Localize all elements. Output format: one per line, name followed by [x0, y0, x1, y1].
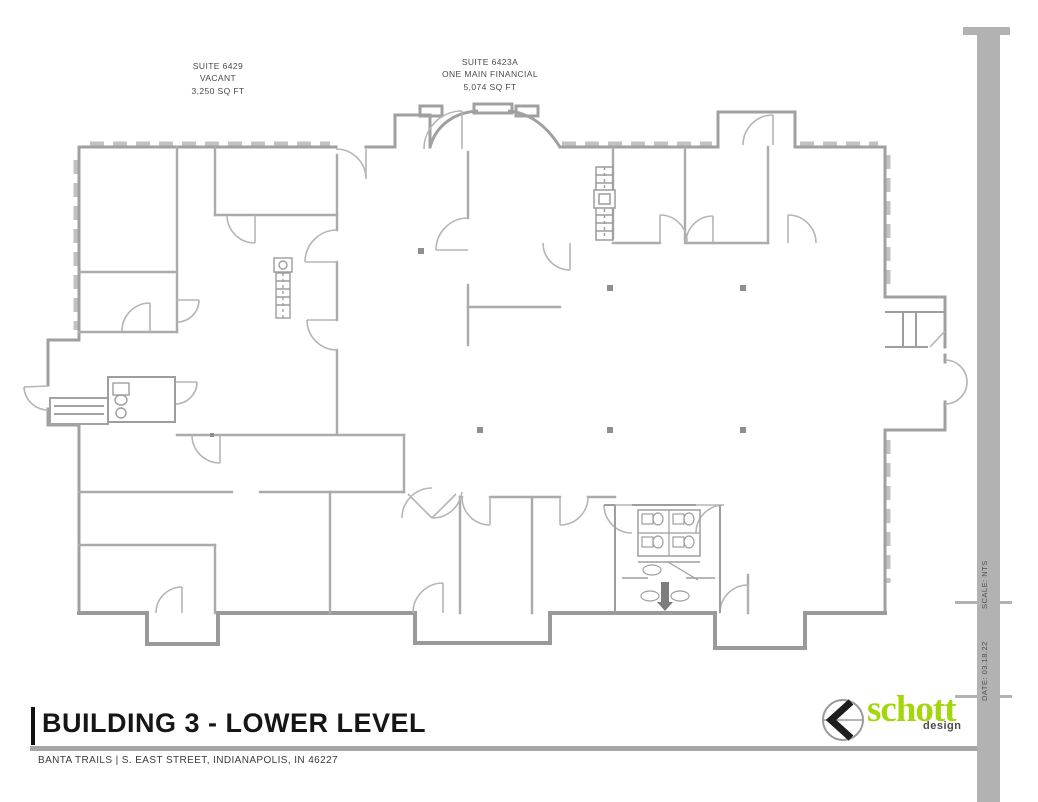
title-accent-bar — [31, 707, 35, 745]
floor-plan-drawing — [0, 0, 1038, 802]
suite-tenant: ONE MAIN FINANCIAL — [405, 68, 575, 80]
title-divider — [30, 746, 986, 751]
bottom-walls — [79, 613, 885, 648]
entry-steps — [50, 398, 108, 424]
drinking-fountain — [641, 582, 689, 611]
page-title: BUILDING 3 - LOWER LEVEL — [42, 708, 426, 739]
suite-label-one-main-financial: SUITE 6423A ONE MAIN FINANCIAL 5,074 SQ … — [405, 56, 575, 93]
scale-label: SCALE: NTS — [980, 560, 989, 609]
door-arcs — [24, 111, 967, 613]
exterior-walls — [48, 112, 945, 613]
stairs-secondary — [274, 258, 292, 318]
logo-suffix: design — [923, 720, 961, 732]
interior-walls — [79, 147, 768, 613]
suite-area: 5,074 SQ FT — [405, 81, 575, 93]
suite-tenant: VACANT — [148, 72, 288, 84]
entry-canopy — [420, 104, 560, 147]
suite-area: 3,250 SQ FT — [148, 85, 288, 97]
window-openings — [76, 144, 888, 583]
restrooms — [604, 505, 720, 613]
logo-chevron-icon — [820, 697, 866, 743]
date-label: DATE: 03.18.22 — [980, 641, 989, 701]
schott-design-logo: schott design — [815, 694, 985, 746]
address-line: BANTA TRAILS | S. EAST STREET, INDIANAPO… — [38, 755, 338, 766]
suite-label-vacant: SUITE 6429 VACANT 3,250 SQ FT — [148, 60, 288, 97]
suite-number: SUITE 6423A — [405, 56, 575, 68]
suite-number: SUITE 6429 — [148, 60, 288, 72]
page: { "plan": { "suite_labels": [ { "line1":… — [0, 0, 1038, 802]
left-restroom — [108, 377, 175, 422]
